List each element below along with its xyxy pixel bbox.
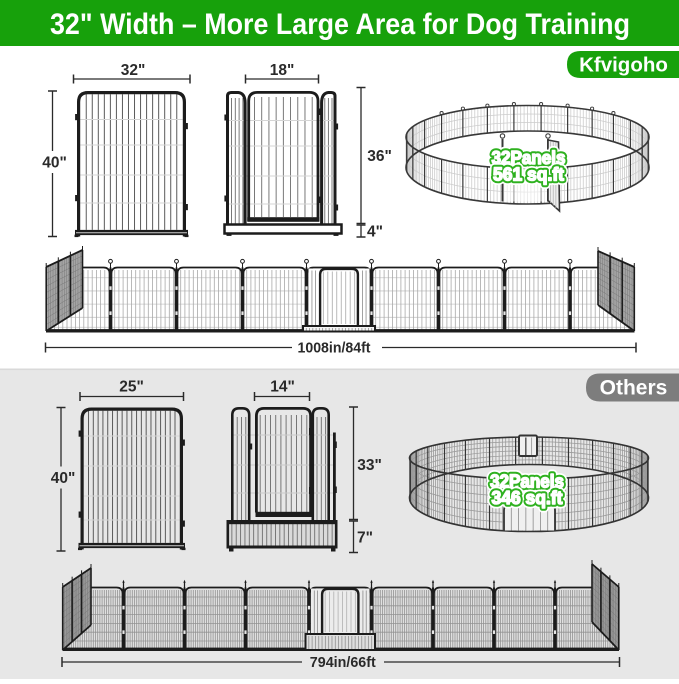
svg-text:40": 40" — [42, 155, 67, 172]
svg-text:Kfvigoho: Kfvigoho — [579, 54, 668, 77]
svg-text:14": 14" — [270, 379, 295, 396]
svg-text:561 sq.ft: 561 sq.ft — [493, 164, 564, 185]
svg-text:18": 18" — [270, 62, 295, 79]
svg-text:Others: Others — [600, 377, 668, 400]
svg-text:40": 40" — [51, 470, 76, 487]
svg-text:7": 7" — [357, 530, 373, 547]
svg-text:32": 32" — [121, 62, 146, 79]
svg-text:36": 36" — [367, 148, 392, 165]
svg-text:32" Width – More Large Area fo: 32" Width – More Large Area for Dog Trai… — [50, 8, 630, 41]
svg-text:25": 25" — [119, 379, 144, 396]
svg-text:4": 4" — [367, 224, 383, 241]
svg-text:1008in/84ft: 1008in/84ft — [298, 339, 371, 356]
svg-text:346 sq.ft: 346 sq.ft — [492, 487, 563, 508]
svg-text:33": 33" — [357, 457, 382, 474]
svg-text:794in/66ft: 794in/66ft — [310, 654, 376, 671]
